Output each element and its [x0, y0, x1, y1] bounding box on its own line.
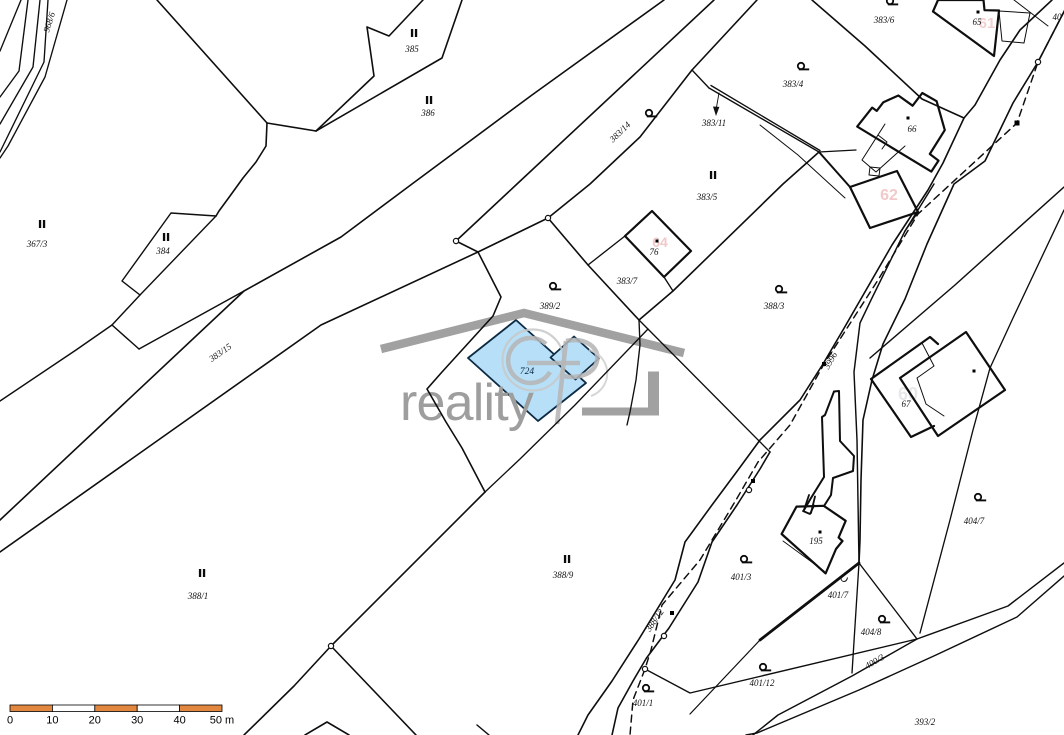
svg-text:401/12: 401/12 — [749, 678, 775, 688]
svg-text:388/1: 388/1 — [187, 591, 209, 601]
svg-text:401/3: 401/3 — [731, 572, 752, 582]
svg-text:30: 30 — [131, 715, 143, 727]
svg-text:40: 40 — [1053, 12, 1063, 22]
svg-text:50 m: 50 m — [210, 715, 234, 727]
svg-text:383/11: 383/11 — [701, 118, 726, 128]
svg-text:195: 195 — [809, 536, 823, 546]
svg-text:367/3: 367/3 — [26, 239, 48, 249]
svg-text:388/9: 388/9 — [552, 570, 574, 580]
svg-text:383/7: 383/7 — [616, 276, 638, 286]
svg-text:401/7: 401/7 — [828, 590, 849, 600]
svg-text:724: 724 — [520, 367, 535, 377]
svg-text:reality: reality — [400, 374, 534, 432]
svg-text:383/5: 383/5 — [696, 192, 718, 202]
svg-text:404/7: 404/7 — [964, 516, 985, 526]
svg-text:67: 67 — [902, 399, 912, 409]
svg-text:401/1: 401/1 — [633, 698, 654, 708]
svg-text:40: 40 — [173, 715, 185, 727]
svg-text:383/6: 383/6 — [873, 15, 895, 25]
svg-text:386: 386 — [420, 108, 435, 118]
svg-text:384: 384 — [155, 246, 170, 256]
svg-text:10: 10 — [46, 715, 58, 727]
svg-text:404/8: 404/8 — [861, 627, 882, 637]
svg-text:20: 20 — [89, 715, 101, 727]
svg-text:65: 65 — [973, 17, 983, 27]
svg-text:385: 385 — [404, 44, 419, 54]
svg-text:62: 62 — [880, 187, 898, 204]
svg-text:0: 0 — [7, 715, 13, 727]
svg-text:76: 76 — [650, 247, 660, 257]
svg-text:393/2: 393/2 — [914, 717, 936, 727]
svg-text:66: 66 — [908, 124, 918, 134]
svg-text:388/3: 388/3 — [763, 301, 785, 311]
svg-text:383/4: 383/4 — [782, 79, 804, 89]
svg-text:389/2: 389/2 — [539, 301, 561, 311]
